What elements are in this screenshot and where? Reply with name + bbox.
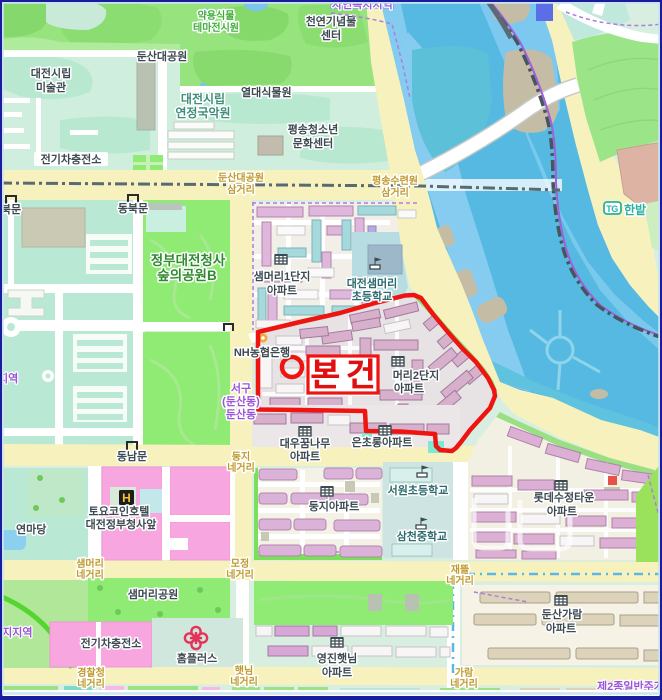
svg-text:롯데수정타운: 롯데수정타운 [534,490,595,504]
svg-text:네거리: 네거리 [450,677,478,690]
svg-text:전기차충전소: 전기차충전소 [41,152,102,166]
svg-text:H: H [122,491,131,505]
svg-text:삼거리: 삼거리 [227,183,255,196]
svg-text:숲의공원B: 숲의공원B [157,267,217,283]
svg-text:가람: 가람 [455,666,474,679]
svg-text:대우꿈나무: 대우꿈나무 [280,436,331,450]
svg-text:서원초등학교: 서원초등학교 [388,483,449,497]
svg-text:평송청소년: 평송청소년 [288,122,339,136]
svg-text:네거리: 네거리 [227,461,255,474]
svg-text:둥지: 둥지 [232,450,250,463]
svg-text:전기차충전소: 전기차충전소 [81,636,142,650]
svg-text:아파트: 아파트 [546,621,576,635]
svg-text:재뜰: 재뜰 [451,563,469,576]
svg-text:연마당: 연마당 [16,522,46,536]
svg-text:햇님: 햇님 [235,664,253,677]
svg-text:은초롱아파트: 은초롱아파트 [352,435,413,449]
svg-text:대전정부청사앞: 대전정부청사앞 [86,517,157,531]
svg-text:대전시립: 대전시립 [181,91,225,106]
svg-text:네거리: 네거리 [230,675,258,688]
svg-text:열대식물원: 열대식물원 [241,85,292,99]
svg-text:네거리: 네거리 [77,677,105,690]
svg-text:삼천중학교: 삼천중학교 [397,529,448,543]
svg-text:북문: 북문 [1,202,21,216]
svg-text:TG: TG [606,204,618,214]
svg-text:영진햇님: 영진햇님 [317,651,357,665]
svg-text:네거리: 네거리 [76,568,104,581]
svg-text:둔산대공원: 둔산대공원 [137,49,188,63]
svg-text:한밭: 한밭 [624,202,646,217]
svg-text:네거리: 네거리 [226,568,254,581]
svg-text:홈플러스: 홈플러스 [177,651,217,665]
svg-text:동북문: 동북문 [118,201,148,215]
svg-text:삼거리: 삼거리 [381,186,409,199]
svg-text:샘머리1단지: 샘머리1단지 [254,269,311,283]
svg-text:미술관: 미술관 [36,80,66,94]
svg-text:약용식물: 약용식물 [198,9,235,22]
svg-text:네거리: 네거리 [446,574,474,587]
svg-text:초등학교: 초등학교 [352,289,392,303]
svg-text:연정국악원: 연정국악원 [175,105,230,120]
svg-text:아파트: 아파트 [547,504,577,518]
svg-text:둔산가람: 둔산가람 [542,607,582,621]
svg-text:테마전시원: 테마전시원 [193,21,239,34]
svg-text:대전시립: 대전시립 [31,66,71,80]
svg-text:경찰청: 경찰청 [77,666,105,679]
svg-text:둔산동: 둔산동 [226,407,256,421]
svg-text:녹지지역: 녹지지역 [0,625,32,639]
svg-text:아파트: 아파트 [290,449,320,463]
svg-text:샘머리공원: 샘머리공원 [128,587,179,601]
svg-text:문화센터: 문화센터 [293,136,333,150]
svg-text:둔산대공원: 둔산대공원 [218,171,264,184]
svg-text:아파트: 아파트 [267,283,297,297]
svg-text:둥지아파트: 둥지아파트 [309,499,360,513]
svg-text:샘머리: 샘머리 [76,557,104,570]
svg-text:정부대전청사: 정부대전청사 [151,252,226,268]
svg-text:대전샘머리: 대전샘머리 [347,276,398,290]
svg-text:서구: 서구 [231,381,251,395]
svg-text:모정: 모정 [231,557,249,570]
svg-text:센터: 센터 [321,28,341,42]
svg-text:아파트: 아파트 [322,665,352,679]
svg-text:NH농협은행: NH농협은행 [234,345,290,359]
svg-text:토요코인호텔: 토요코인호텔 [89,504,150,518]
svg-text:아파트: 아파트 [394,381,424,395]
svg-text:머리2단지: 머리2단지 [393,368,440,382]
svg-text:(둔산동): (둔산동) [222,394,260,408]
svg-text:천연기념물: 천연기념물 [306,14,357,28]
svg-text:평송수련원: 평송수련원 [372,174,418,187]
svg-text:동남문: 동남문 [117,450,147,463]
